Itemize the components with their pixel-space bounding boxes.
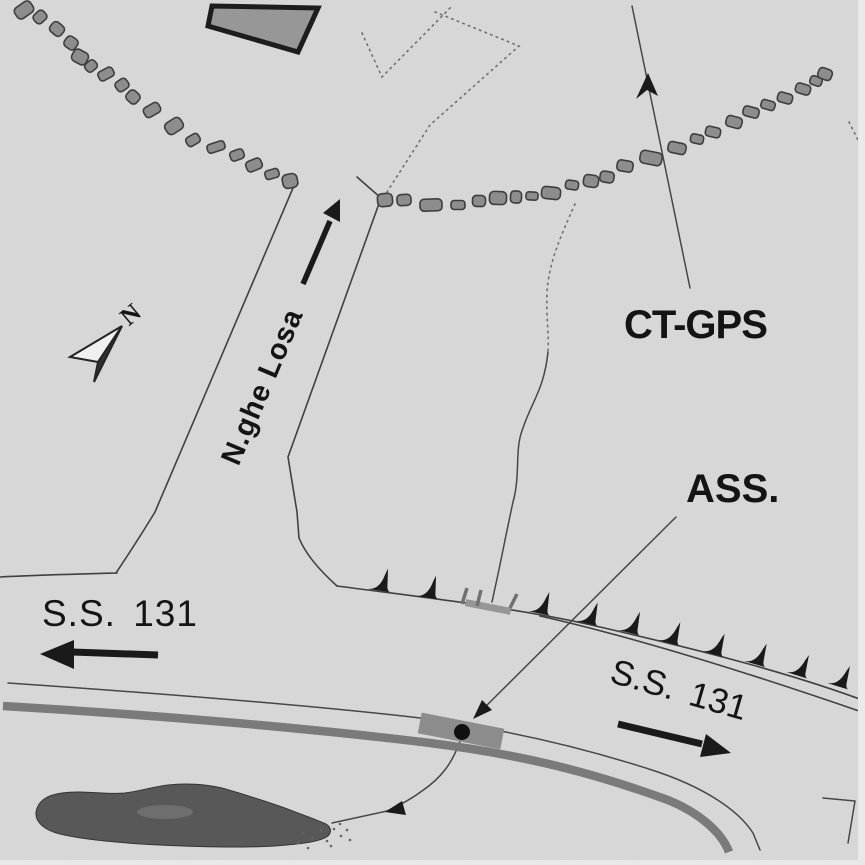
label-ct-gps: CT-GPS	[624, 305, 767, 345]
map-canvas	[0, 0, 865, 865]
scan-grain	[0, 0, 865, 865]
scan-edge-bottom	[0, 860, 865, 865]
scan-edge-right	[858, 0, 865, 865]
label-ass: ASS.	[686, 469, 779, 509]
scanned-site-map: CT-GPS ASS. N.ghe Losa S.S. 131 S.S. 131…	[0, 0, 865, 865]
label-ss131-west: S.S. 131	[42, 595, 198, 632]
